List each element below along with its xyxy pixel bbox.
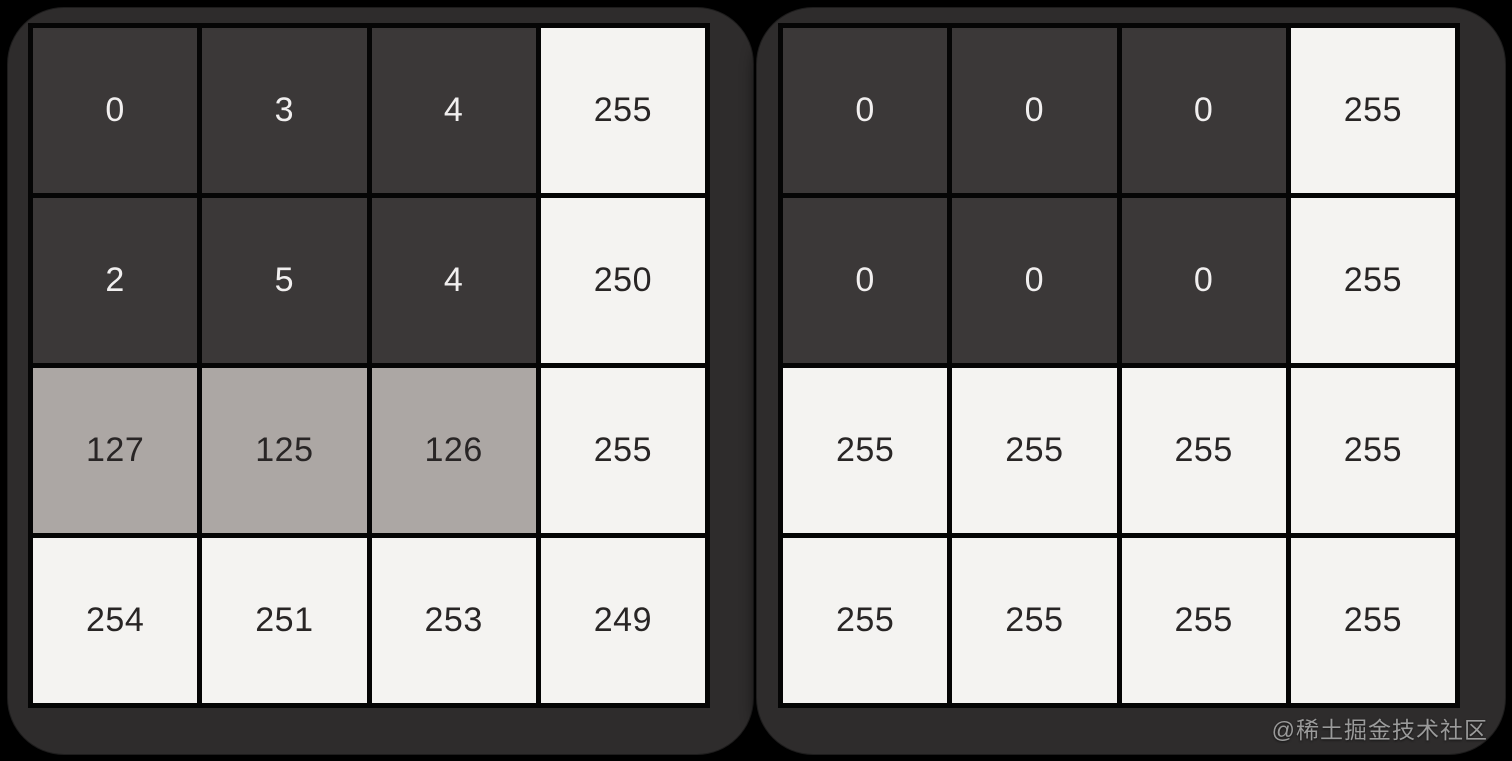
matrix-cell: 255 — [541, 368, 705, 533]
matrix-cell: 255 — [1291, 538, 1455, 703]
matrix-cell: 255 — [783, 368, 947, 533]
matrix-cell: 0 — [33, 28, 197, 193]
matrix-cell: 255 — [952, 368, 1116, 533]
matrix-cell: 5 — [202, 198, 366, 363]
matrix-cell: 255 — [1122, 538, 1286, 703]
matrix-cell: 4 — [372, 198, 536, 363]
matrix-cell: 255 — [783, 538, 947, 703]
matrix-cell: 255 — [541, 28, 705, 193]
matrix-cell: 255 — [1122, 368, 1286, 533]
matrix-cell: 0 — [1122, 198, 1286, 363]
matrix-cell: 255 — [1291, 28, 1455, 193]
watermark: @稀土掘金技术社区 — [1272, 711, 1488, 745]
matrix-cell: 0 — [1122, 28, 1286, 193]
matrix-cell: 251 — [202, 538, 366, 703]
matrix-cell: 255 — [952, 538, 1116, 703]
matrix-cell: 254 — [33, 538, 197, 703]
grid-left-matrix: 034255254250127125126255254251253249 — [28, 23, 710, 708]
binarization-diagram: 034255254250127125126255254251253249 000… — [0, 0, 1512, 761]
panel-left-matrix: 034255254250127125126255254251253249 — [8, 8, 753, 754]
grid-right-matrix: 000255000255255255255255255255255255 — [778, 23, 1460, 708]
matrix-cell: 125 — [202, 368, 366, 533]
matrix-cell: 250 — [541, 198, 705, 363]
matrix-cell: 249 — [541, 538, 705, 703]
matrix-cell: 3 — [202, 28, 366, 193]
matrix-cell: 126 — [372, 368, 536, 533]
matrix-cell: 0 — [783, 198, 947, 363]
matrix-cell: 0 — [783, 28, 947, 193]
matrix-cell: 2 — [33, 198, 197, 363]
matrix-cell: 4 — [372, 28, 536, 193]
panel-right-matrix: 000255000255255255255255255255255255 — [757, 8, 1505, 754]
matrix-cell: 253 — [372, 538, 536, 703]
matrix-cell: 127 — [33, 368, 197, 533]
matrix-cell: 255 — [1291, 198, 1455, 363]
matrix-cell: 255 — [1291, 368, 1455, 533]
matrix-cell: 0 — [952, 28, 1116, 193]
matrix-cell: 0 — [952, 198, 1116, 363]
